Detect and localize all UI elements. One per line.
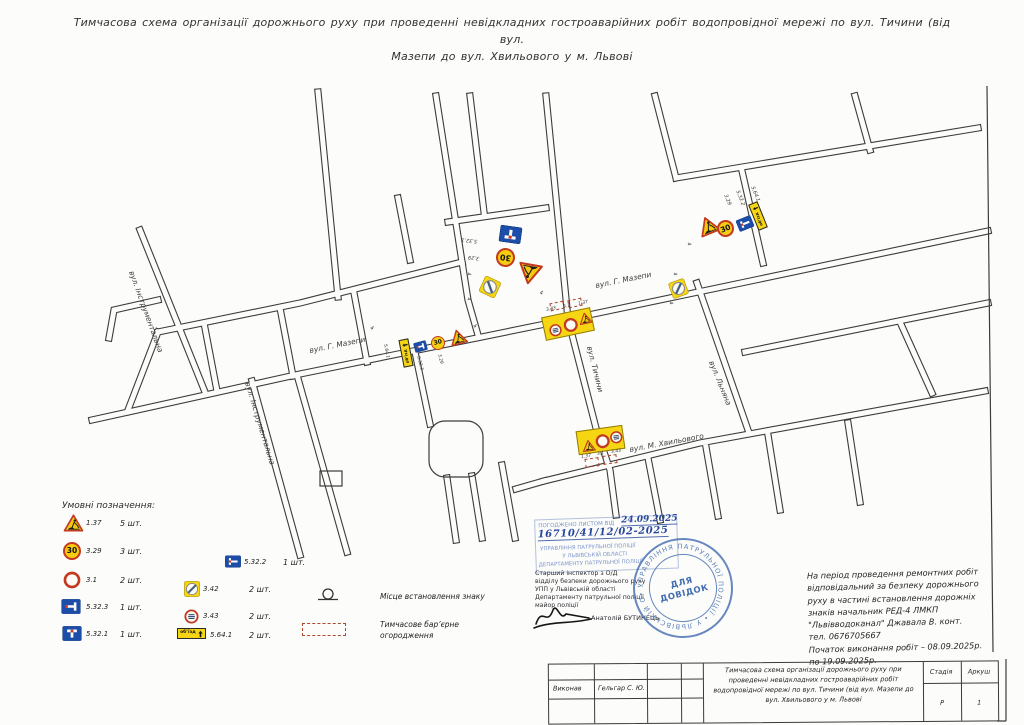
legend-heading: Умовні позначення: xyxy=(62,493,155,512)
restriction-343-sign-icon xyxy=(609,430,624,445)
document-page: { "page": { "title_line1": "Тимчасова сх… xyxy=(0,0,1024,724)
road-upper-middle xyxy=(436,96,546,335)
street-labels: вул. Г. Мазепи вул. Г. Мазепи вул. Тичин… xyxy=(127,270,733,467)
legend-5322-icon xyxy=(225,555,241,568)
street-label-mazepy-left: вул. Г. Мазепи xyxy=(309,335,367,355)
legend-barrier-icon xyxy=(302,623,346,636)
street-label-mazepy-right: вул. Г. Мазепи xyxy=(595,270,653,290)
legend-qty: 5 шт. xyxy=(120,520,142,528)
legend-code: 5.32.3 xyxy=(86,604,108,611)
title-block: Виконав Гельгар С. Ю. Тимчасова схема ор… xyxy=(548,660,999,724)
legend-speed-limit-icon: 30 xyxy=(63,542,81,560)
legend-qty: 2 шт. xyxy=(249,613,271,621)
legend-qty: 2 шт. xyxy=(249,586,271,594)
road-parallel-upper xyxy=(128,262,462,410)
road-topleft xyxy=(318,92,410,297)
page-title-line1: Тимчасова схема організації дорожнього р… xyxy=(70,14,954,48)
title-block-divider xyxy=(681,664,682,723)
road-bottom-center xyxy=(447,465,544,540)
signature xyxy=(531,600,595,630)
legend-roadworks-icon xyxy=(63,514,84,532)
roadworks-sign-icon xyxy=(515,261,543,287)
title-block-title: Тимчасова схема організації дорожнього р… xyxy=(706,665,921,718)
street-label-instrumentalna-lower: вул. Інструментальна xyxy=(243,381,277,466)
legend-qty: 2 шт. xyxy=(249,632,271,640)
detour-text: об’їзд xyxy=(755,212,764,226)
road-bottom-right xyxy=(648,322,932,520)
legend-5321-icon xyxy=(62,626,82,641)
legend-343-icon xyxy=(184,609,199,624)
legend-code: 3.42 xyxy=(203,586,219,593)
rounded-block xyxy=(429,421,483,477)
road-top-right xyxy=(655,96,978,263)
speed-limit-value: 30 xyxy=(499,253,511,262)
legend-code: 5.32.1 xyxy=(86,631,108,638)
page-title-line2: Мазепи до вул. Хвильового у м. Львові xyxy=(70,48,954,65)
legend-code: 3.29 xyxy=(86,548,102,555)
legend-code: 5.64.1 xyxy=(210,632,232,639)
legend-qty: 1 шт. xyxy=(283,559,305,567)
detour-text: об’їзд xyxy=(180,631,196,636)
no-traffic-31-sign-icon xyxy=(562,316,580,334)
executor-label: Виконав xyxy=(553,685,582,692)
org-line2: У ЛЬВІВСЬКІЙ ОБЛАСТІ xyxy=(562,551,627,559)
speed-limit-value: 30 xyxy=(67,547,77,555)
stage-label: Стадія xyxy=(930,669,953,676)
page-title: Тимчасова схема організації дорожнього р… xyxy=(70,14,954,65)
road-parallel-upper xyxy=(128,262,462,410)
title-block-divider xyxy=(549,678,703,680)
legend-no-traffic-icon xyxy=(63,571,81,589)
sign-code-label: 3.29 xyxy=(468,254,480,260)
up-arrow-icon xyxy=(401,342,409,347)
title-block-divider xyxy=(961,662,962,721)
legend-code: 5.32.2 xyxy=(244,559,266,566)
sign-code-label: 5.32.1 xyxy=(461,236,477,243)
title-block-divider xyxy=(647,664,648,723)
sheet-value: 1 xyxy=(977,700,981,707)
road-lniana xyxy=(697,283,748,430)
up-arrow-icon xyxy=(751,205,759,211)
temporary-barrier xyxy=(602,454,617,465)
speed-limit-value: 30 xyxy=(719,223,731,234)
legend-detour-icon: об’їзд xyxy=(177,628,206,639)
legend-code: 3.1 xyxy=(86,577,97,584)
legend-barrier-label: Тимчасове бар’єрне огородження xyxy=(380,620,490,642)
legend-342-icon xyxy=(184,581,200,597)
road-bottom-center xyxy=(447,465,544,540)
road-instrumentalna-upper xyxy=(109,230,205,392)
restriction-343-sign-icon xyxy=(548,323,563,338)
route-sign-5321-icon xyxy=(497,224,524,244)
legend-place-marker-icon xyxy=(317,586,339,604)
title-block-divider xyxy=(923,662,924,721)
legend-qty: 2 шт. xyxy=(120,577,142,585)
road-top-right xyxy=(655,96,978,263)
stage-value: Р xyxy=(940,700,944,707)
up-arrow-icon xyxy=(198,630,203,638)
title-block-divider xyxy=(703,663,704,722)
legend-qty: 1 шт. xyxy=(120,604,142,612)
legend-place-marker-label: Місце встановлення знаку xyxy=(380,592,490,603)
legend-qty: 3 шт. xyxy=(120,548,142,556)
legend-5323-icon xyxy=(61,599,81,614)
approval-number: 16710/41/12/02-2025 xyxy=(537,526,668,542)
legend-code: 1.37 xyxy=(86,520,102,527)
speed-limit-value: 30 xyxy=(433,339,443,347)
title-block-divider xyxy=(549,697,703,699)
road-mazepy xyxy=(92,231,988,420)
title-block-divider xyxy=(594,664,595,723)
legend-qty: 1 шт. xyxy=(120,631,142,639)
detour-text: об’їзд xyxy=(403,349,410,364)
road-bottom-right xyxy=(648,322,932,520)
executor-name: Гельгар С. Ю. xyxy=(598,685,645,692)
roadworks-sign-icon xyxy=(577,311,593,326)
inspector-line: УПП у Львівській області xyxy=(535,586,647,594)
responsibility-note: На період проведення ремонтних робіт від… xyxy=(807,564,1020,668)
road-right-parallel xyxy=(745,303,988,352)
legend-code: 3.43 xyxy=(203,613,219,620)
road-instrumentalna-lower xyxy=(252,352,430,555)
temporary-barrier xyxy=(584,457,599,468)
sheet-label: Аркуш xyxy=(968,668,990,675)
